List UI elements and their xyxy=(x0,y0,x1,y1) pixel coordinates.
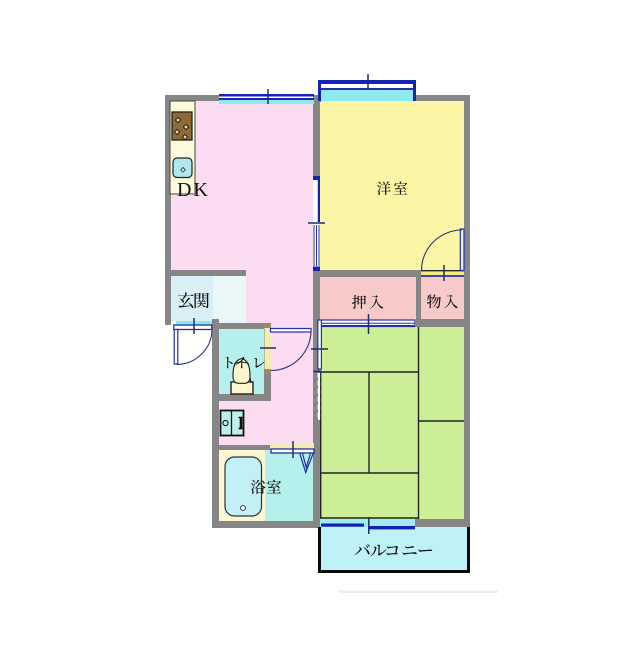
svg-text:DK: DK xyxy=(177,179,210,201)
